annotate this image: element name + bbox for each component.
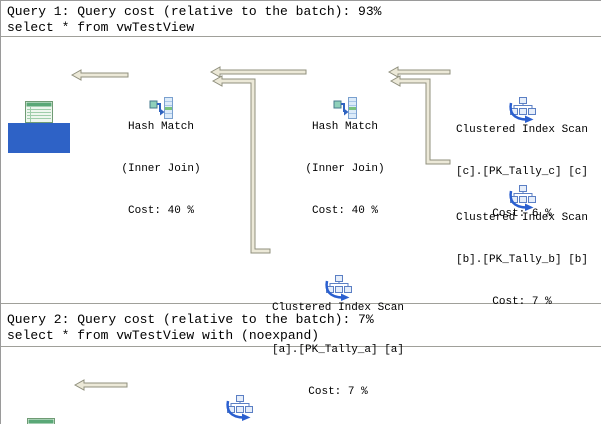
operator-name: Clustered Index Scan [452, 211, 592, 225]
operator-detail: (Inner Join) [111, 162, 211, 176]
operator-detail: [b].[PK_Tally_b] [b] [452, 253, 592, 267]
select-result-icon [27, 388, 55, 410]
operator-cost: Cost: 7 % [452, 295, 592, 309]
query1-cost-line: Query 1: Query cost (relative to the bat… [1, 4, 601, 20]
select-result-icon [25, 73, 53, 95]
clustered-index-scan-icon [508, 69, 536, 95]
operator-name: SELECT [8, 153, 70, 168]
operator-hash-match-2[interactable]: Hash Match (Inner Join) Cost: 40 % [295, 41, 395, 246]
query1-header: Query 1: Query cost (relative to the bat… [1, 1, 601, 37]
operator-detail: (Inner Join) [295, 162, 395, 176]
operator-name: Hash Match [295, 120, 395, 134]
hash-match-icon [333, 69, 357, 92]
operator-cost: Cost: 0 % [8, 198, 70, 213]
hash-match-icon [149, 69, 173, 92]
operator-cost: Cost: 40 % [295, 204, 395, 218]
operator-hash-match-1[interactable]: Hash Match (Inner Join) Cost: 40 % [111, 41, 211, 246]
clustered-index-scan-icon [508, 157, 536, 183]
clustered-index-scan-icon [324, 247, 352, 273]
selected-operator-highlight: SELECT Cost: 0 % [8, 123, 70, 153]
operator-name: Hash Match [111, 120, 211, 134]
clustered-index-scan-icon [225, 371, 253, 397]
operator-select-q1[interactable]: SELECT Cost: 0 % [8, 45, 70, 181]
operator-select-q2[interactable]: SELECT Cost: 0 % [11, 358, 71, 424]
operator-clustered-index-scan-view[interactable]: Clustered Index Scan [vwTestView].[vwTes… [124, 347, 354, 424]
query1-sql-text: select * from vwTestView [1, 20, 601, 36]
operator-name: Clustered Index Scan [268, 301, 408, 315]
execution-plan-panel: Query 1: Query cost (relative to the bat… [0, 0, 601, 424]
operator-cost: Cost: 40 % [111, 204, 211, 218]
operator-clustered-index-scan-b[interactable]: Clustered Index Scan [b].[PK_Tally_b] [b… [452, 129, 592, 337]
